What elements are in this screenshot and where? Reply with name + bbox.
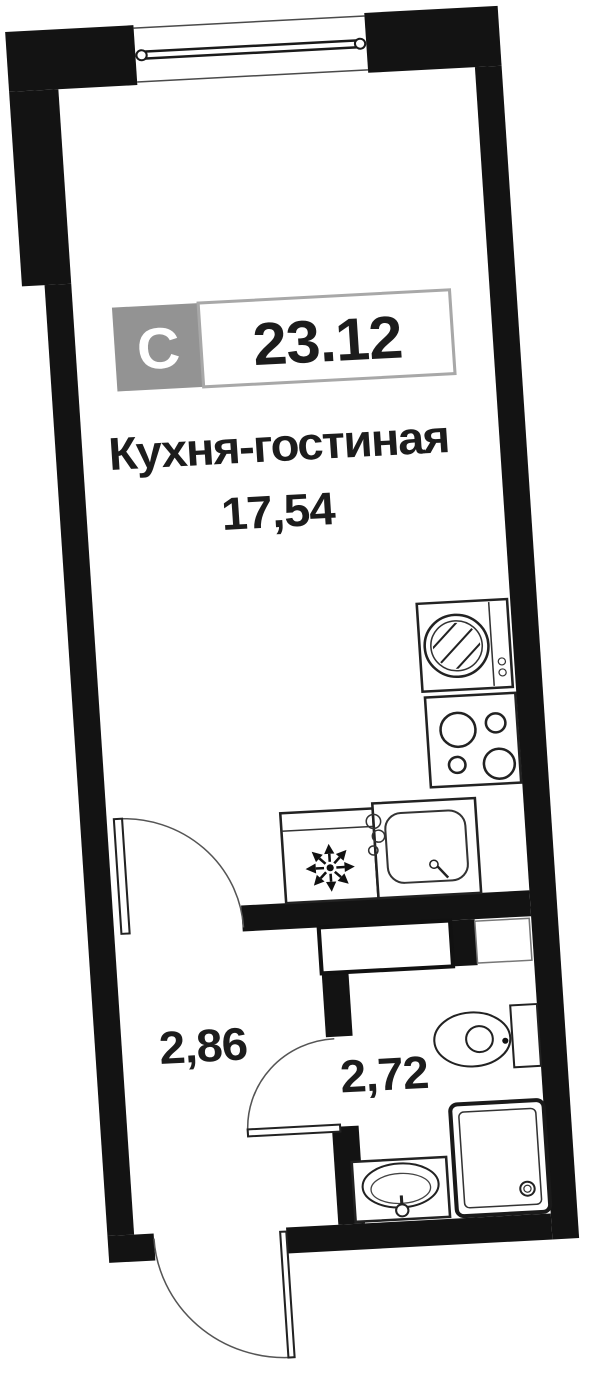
kitchen-living-name-label: Кухня-гостиная [107, 411, 450, 480]
kitchen-living-area-label: 17,54 [220, 483, 337, 540]
floor-plan-svg: С 23.12 Кухня-гостиная 17,54 2,86 2,72 [0, 0, 600, 1395]
badge-letter: С [135, 316, 181, 382]
kitchen-faucet-handle [430, 860, 439, 868]
kitchen-sink-icon [365, 798, 481, 899]
unit-badge: С 23.12 [112, 290, 455, 392]
window-inner-face-line [137, 70, 368, 82]
wall-top-left-block [5, 25, 137, 92]
cooktop-icon [425, 693, 521, 788]
washing-machine-icon [389, 581, 524, 711]
shower-icon [450, 1100, 551, 1217]
kitchen-door [114, 813, 244, 934]
washbasin-icon [352, 1157, 450, 1222]
floor-plan-canvas: С 23.12 Кухня-гостиная 17,54 2,86 2,72 [0, 0, 600, 1395]
wall-left-foot [107, 1234, 155, 1263]
bathroom-door-leaf [248, 1125, 341, 1137]
fridge-icon [280, 808, 378, 903]
window-icon [134, 16, 368, 82]
kitchen-door-leaf [114, 819, 130, 934]
toilet-icon [432, 1004, 541, 1071]
kitchen-sink-counter [372, 798, 481, 898]
toilet-bowl [433, 1011, 512, 1069]
badge-total-area: 23.12 [251, 303, 404, 378]
window-outer-face-line [134, 16, 365, 28]
washbasin-faucet-handle [396, 1204, 409, 1217]
entrance-door [154, 1232, 295, 1365]
bathroom-door [242, 1039, 340, 1137]
shower-drain [520, 1181, 535, 1196]
wall-partition-bath-upper [322, 972, 353, 1037]
bathroom-area-label: 2,72 [338, 1046, 429, 1102]
bathroom-door-arc-icon [242, 1039, 340, 1134]
hallway-area-label: 2,86 [157, 1018, 248, 1074]
ventilation-duct-icon [319, 920, 453, 973]
plan-tilt-group: С 23.12 Кухня-гостиная 17,54 2,86 2,72 [5, 6, 586, 1368]
wall-left-upper [9, 89, 71, 286]
wall-left-lower [45, 284, 135, 1236]
window-knob-right [355, 38, 366, 49]
wall-top-right-block [364, 6, 501, 73]
window-knob-left [136, 50, 147, 61]
toilet-cistern [510, 1004, 541, 1067]
entrance-door-arc-icon [154, 1232, 292, 1365]
kitchen-door-arc-icon [118, 813, 244, 934]
bathroom-shelf-icon [475, 918, 532, 963]
